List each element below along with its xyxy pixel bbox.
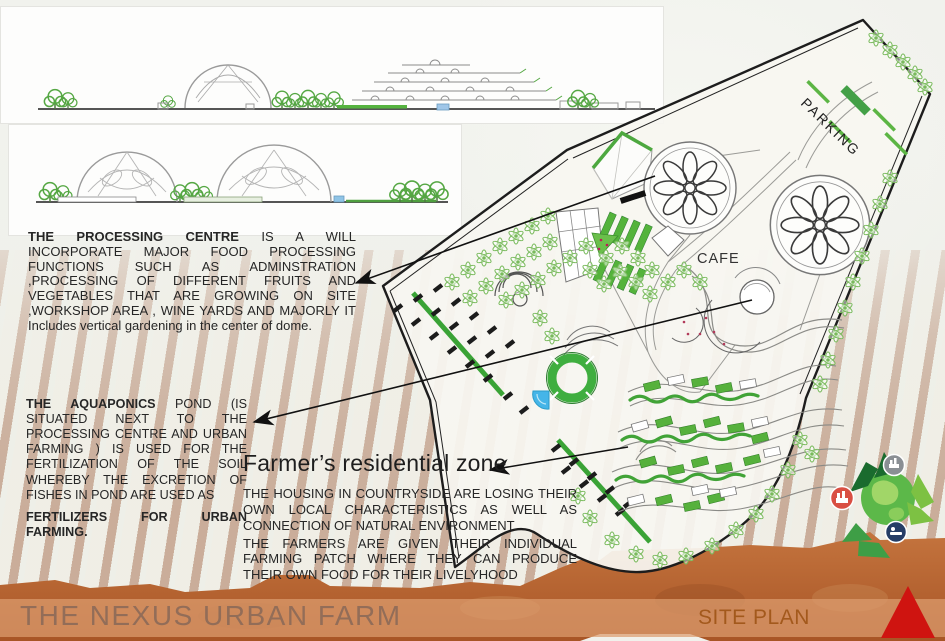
- board-title: THE NEXUS URBAN FARM: [20, 600, 402, 632]
- processing-centre-lead: THE PROCESSING CENTRE: [28, 229, 239, 244]
- processing-centre-note: THE PROCESSING CENTRE IS A WILL INCORPOR…: [28, 230, 356, 334]
- aquaponics-note-line2: FERTILIZERS FOR URBAN FARMING.: [26, 510, 247, 540]
- aquaponics-lead: THE AQUAPONICS: [26, 397, 156, 411]
- presentation-board: PARKING CAFE THE PROCESSING CENTRE IS A …: [0, 0, 945, 641]
- aquaponics-note: THE AQUAPONICS POND (IS SITUATED NEXT TO…: [26, 397, 247, 540]
- farmer-zone-heading: Farmer’s residential zone: [243, 450, 507, 477]
- red-triangle-logo: [876, 582, 938, 640]
- farmer-zone-note: THE HOUSING IN COUNTRYSIDE ARE LOSING TH…: [243, 486, 577, 585]
- recycle-globe-icon: [822, 440, 945, 562]
- cafe-label: CAFE: [697, 251, 740, 267]
- site-plan-label: SITE PLAN: [698, 606, 810, 630]
